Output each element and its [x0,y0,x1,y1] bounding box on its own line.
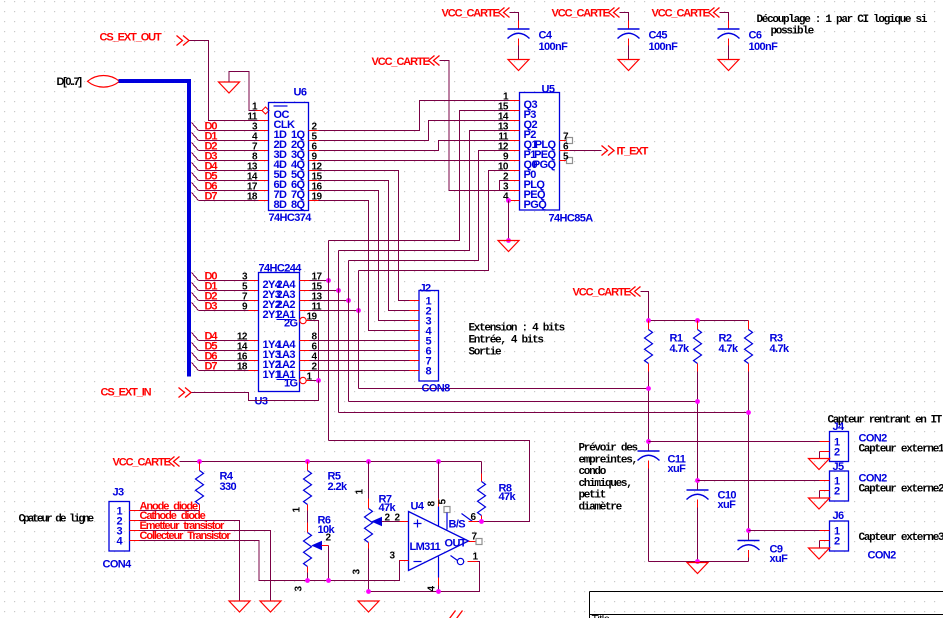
svg-text:J3: J3 [113,487,125,499]
svg-text:CS_EXT_IN: CS_EXT_IN [101,387,152,399]
svg-text:petit: petit [579,490,606,502]
svg-text:100nF: 100nF [539,41,569,53]
svg-text:VCC_CARTE: VCC_CARTE [573,287,631,299]
svg-text:11: 11 [247,112,258,123]
svg-text:Capteur rentrant en IT: Capteur rentrant en IT [828,415,943,427]
svg-text:2: 2 [834,536,840,548]
svg-text:74HC374: 74HC374 [269,212,313,224]
svg-text:CON8: CON8 [422,383,451,395]
svg-text:J6: J6 [833,510,845,522]
svg-text:8Q: 8Q [291,199,306,211]
svg-text:J2: J2 [420,283,432,295]
svg-text:possible: possible [771,26,815,38]
svg-text:OUT: OUT [445,538,467,550]
svg-text:100nF: 100nF [749,41,779,53]
svg-text:74HC85A: 74HC85A [549,213,594,225]
svg-text:Sortie: Sortie [469,347,503,359]
svg-text:PGQ: PGQ [524,199,548,211]
svg-text:4.7k: 4.7k [719,343,739,355]
svg-text:8D: 8D [274,199,288,211]
svg-text:J5: J5 [833,461,845,473]
svg-text:condo: condo [579,466,607,478]
svg-text:xuF: xuF [668,463,687,475]
svg-text:Découplage : 1 par CI logique: Découplage : 1 par CI logique si [757,14,928,26]
svg-text:2.2k: 2.2k [328,481,348,493]
svg-text:100nF: 100nF [649,41,679,53]
svg-text:C6: C6 [749,30,762,42]
svg-text:VCC_CARTE: VCC_CARTE [372,56,430,68]
svg-text:1G: 1G [284,378,298,390]
svg-text:U6: U6 [294,87,307,99]
svg-text:D7: D7 [205,361,218,373]
svg-text:2: 2 [834,447,840,459]
svg-text:8: 8 [426,366,432,378]
svg-text:4.7k: 4.7k [770,343,790,355]
svg-text:4.7k: 4.7k [670,343,690,355]
svg-text:CS_EXT_OUT: CS_EXT_OUT [100,32,163,44]
svg-text:diamètre: diamètre [579,502,623,514]
svg-text:LM311: LM311 [410,541,441,553]
svg-text:18: 18 [237,362,248,373]
svg-text:Capteur externe3: Capteur externe3 [859,532,943,544]
svg-text:Cpateur de ligne: Cpateur de ligne [19,514,95,526]
svg-text:Prévoir des: Prévoir des [579,443,638,455]
svg-text:2G: 2G [284,318,298,330]
svg-text:VCC_CARTE: VCC_CARTE [552,8,610,20]
svg-text:C4: C4 [539,30,553,42]
svg-text:D3: D3 [205,301,218,313]
svg-text:U3: U3 [255,396,268,408]
svg-text:Extension : 4 bits: Extension : 4 bits [469,323,565,335]
svg-text:Capteur externe1: Capteur externe1 [859,444,943,456]
svg-text:VCC_CARTE: VCC_CARTE [442,8,500,20]
svg-text:47k: 47k [499,491,517,503]
svg-text:B/S: B/S [449,519,466,531]
svg-text:2: 2 [834,486,840,498]
svg-text:Capteur externe2: Capteur externe2 [859,484,943,496]
svg-text:empreintes,: empreintes, [579,454,637,466]
svg-text:C45: C45 [649,30,668,42]
svg-text:18: 18 [247,192,258,203]
svg-text:330: 330 [220,481,237,493]
svg-text:chimiques,: chimiques, [579,478,632,490]
svg-text:xuF: xuF [718,499,737,511]
svg-text:74HC244: 74HC244 [259,263,303,275]
svg-text:CON2: CON2 [868,550,897,562]
svg-text:VCC_CARTE: VCC_CARTE [113,457,171,469]
svg-text:PGQ: PGQ [533,159,557,171]
svg-text:U5: U5 [542,84,555,96]
svg-text:xuF: xuF [770,553,789,565]
svg-text:Title: Title [592,614,610,618]
svg-text:Entrée, 4 bits: Entrée, 4 bits [469,335,544,347]
svg-text:IT_EXT: IT_EXT [617,146,649,158]
svg-text:D7: D7 [205,191,218,203]
svg-text:VCC_CARTE: VCC_CARTE [652,8,710,20]
svg-text:CON4: CON4 [103,559,133,571]
svg-text:D[0..7]: D[0..7] [57,76,83,88]
svg-text:U4: U4 [411,501,425,513]
svg-text:J4: J4 [833,421,846,433]
